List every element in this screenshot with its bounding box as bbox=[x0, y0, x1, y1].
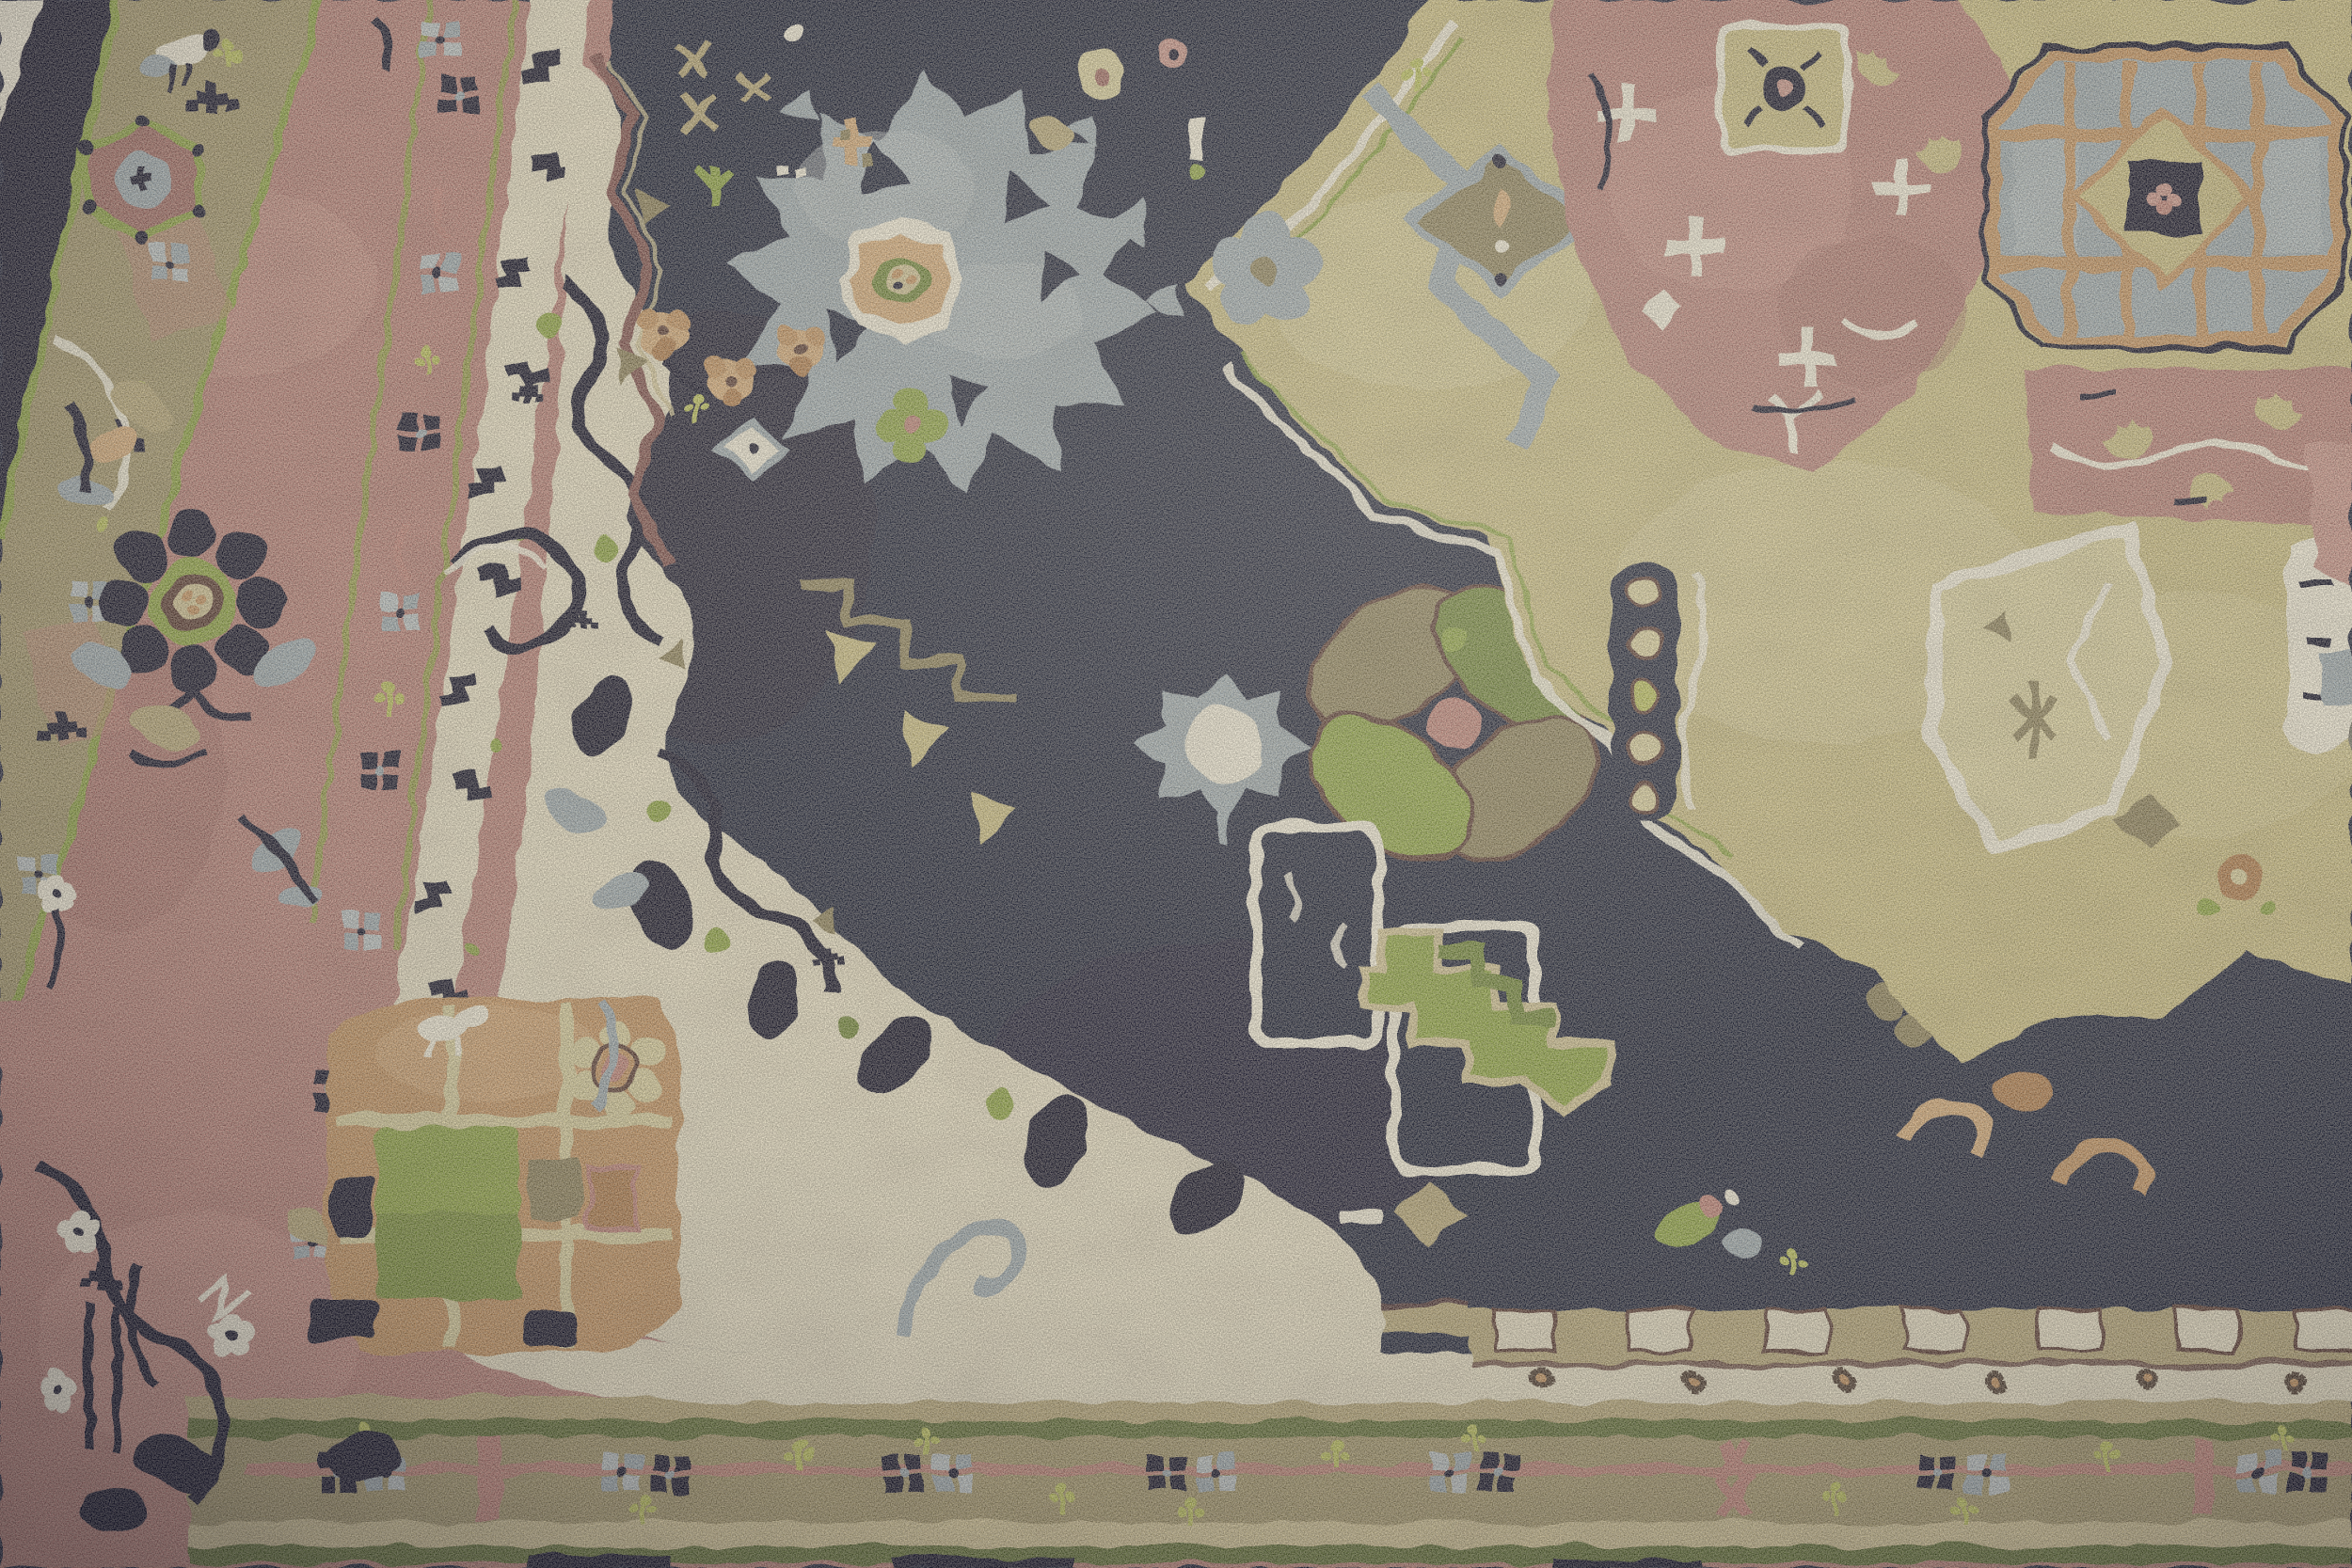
lighting-vignette bbox=[0, 0, 2352, 1568]
rug-photo bbox=[0, 0, 2352, 1568]
rug-canvas bbox=[0, 0, 2352, 1568]
